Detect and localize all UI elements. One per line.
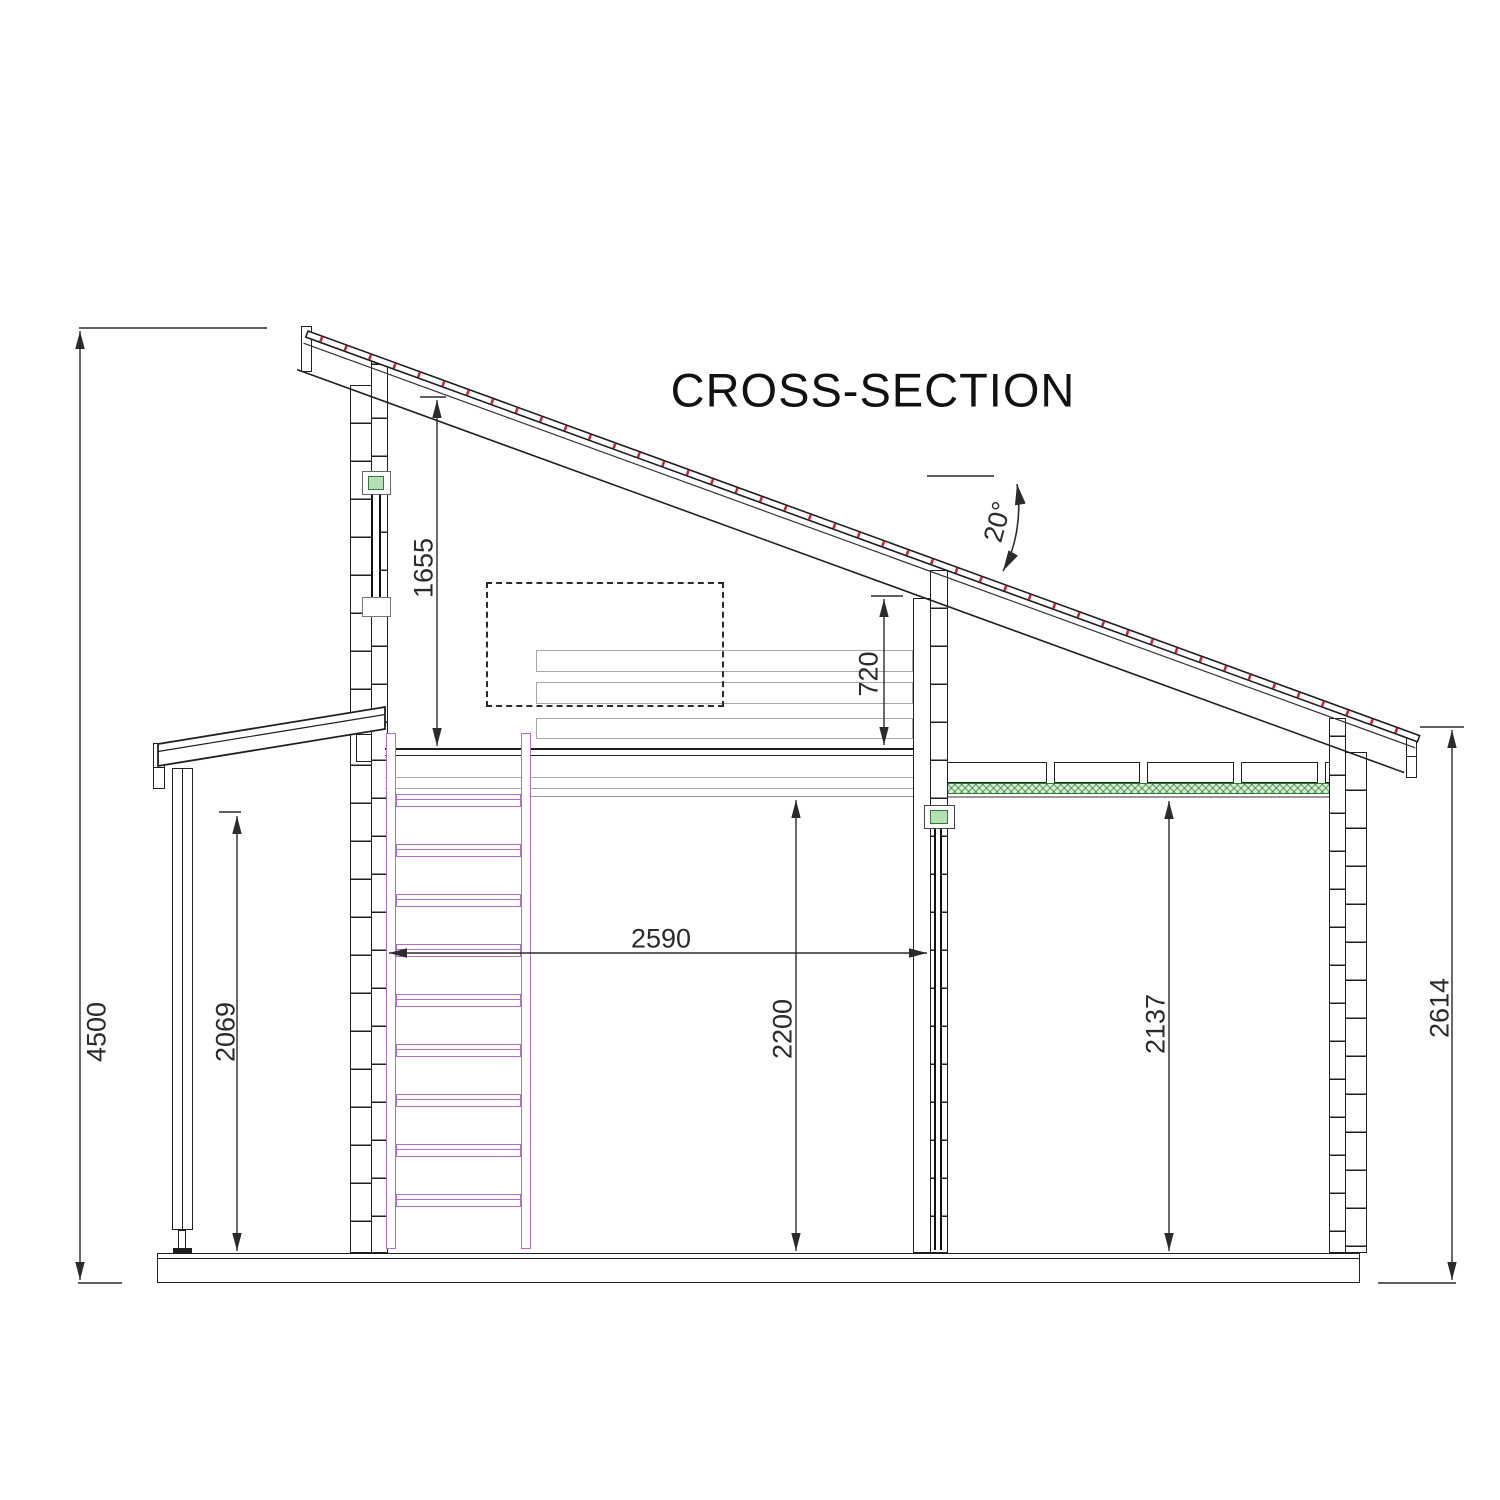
- dim-label-loft-clearance: 720: [854, 651, 885, 696]
- dimension-lines: [78, 328, 1464, 1283]
- dim-label-porch-height: 2069: [211, 1002, 242, 1062]
- rafter-underside-line: [297, 370, 1404, 773]
- dim-label-right-wall-height: 2614: [1425, 978, 1456, 1038]
- dim-label-roof-to-loft: 1655: [409, 538, 440, 598]
- dim-label-right-room-height: 2137: [1141, 994, 1172, 1054]
- drawing-title: CROSS-SECTION: [671, 363, 1076, 418]
- drawing-canvas: CROSS-SECTION 4500 1655 720 2069 2590 22…: [0, 0, 1500, 1500]
- linework-layer: [0, 0, 1500, 1500]
- dim-label-overall-height: 4500: [82, 1002, 113, 1062]
- porch-beam: [158, 707, 385, 766]
- dim-label-main-room-height: 2200: [768, 999, 799, 1059]
- dim-label-loft-width: 2590: [631, 924, 691, 955]
